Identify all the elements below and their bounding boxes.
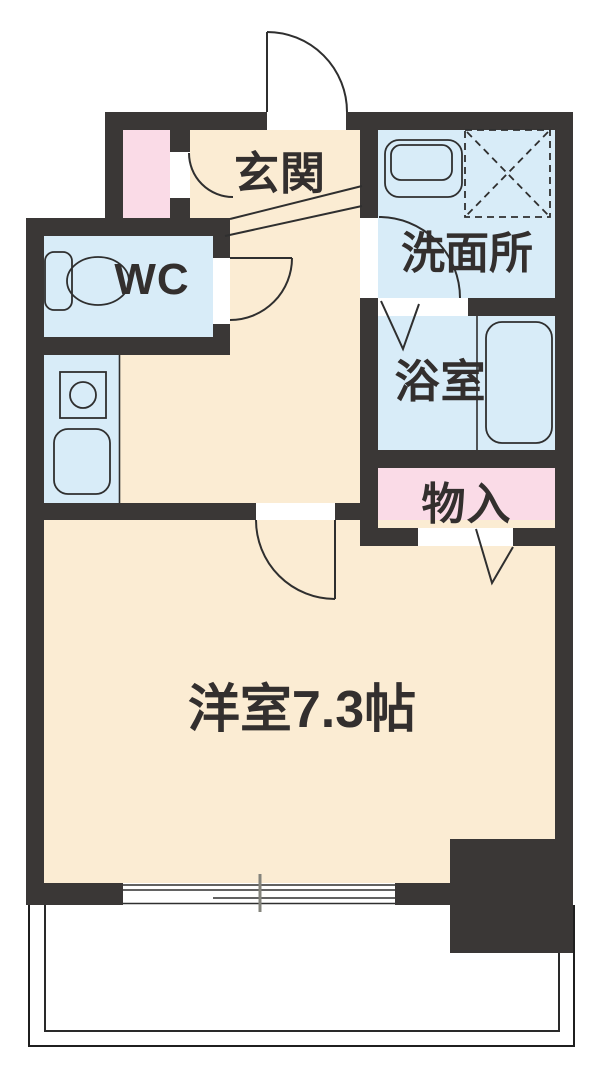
room-kitchen-floor — [119, 355, 232, 503]
main-door-opening — [256, 503, 335, 520]
wall — [26, 218, 230, 236]
yokushitsu-label: 浴室 — [378, 357, 503, 407]
wall — [395, 883, 452, 905]
kitchen-counter — [44, 355, 119, 503]
wall — [213, 236, 230, 258]
room-hallway — [230, 218, 360, 503]
wall — [213, 324, 230, 337]
sliding-window — [123, 883, 395, 905]
room-entry-closet — [123, 130, 170, 218]
wall — [26, 883, 123, 905]
wall-corner-block — [450, 839, 573, 953]
wall — [360, 450, 573, 468]
wall — [170, 130, 190, 152]
wall — [555, 112, 573, 905]
senmenjo-label: 洗面所 — [379, 229, 555, 279]
washroom-door-opening — [361, 218, 378, 298]
storage-door-opening — [418, 528, 513, 546]
wall — [360, 130, 378, 218]
entrance-door-opening — [267, 112, 346, 130]
wall — [346, 112, 573, 130]
wc-door-opening — [213, 258, 230, 324]
entrance-door-arc — [267, 32, 347, 112]
wall — [26, 503, 256, 520]
wc-label: WC — [102, 257, 202, 303]
monoire-label: 物入 — [378, 481, 555, 529]
yoshitsu-label: 洋室7.3帖 — [118, 681, 486, 739]
bathroom-door-opening — [378, 298, 468, 316]
closet-door-opening — [170, 152, 190, 198]
wall — [26, 337, 230, 355]
wall — [105, 112, 267, 130]
wall — [105, 112, 123, 218]
wall — [26, 218, 44, 905]
genkan-label: 玄関 — [198, 148, 362, 200]
wall — [170, 198, 190, 218]
floor-plan: 玄関 WC 洗面所 浴室 物入 洋室7.3帖 — [0, 0, 600, 1072]
wall — [360, 528, 418, 546]
wall — [335, 503, 378, 520]
